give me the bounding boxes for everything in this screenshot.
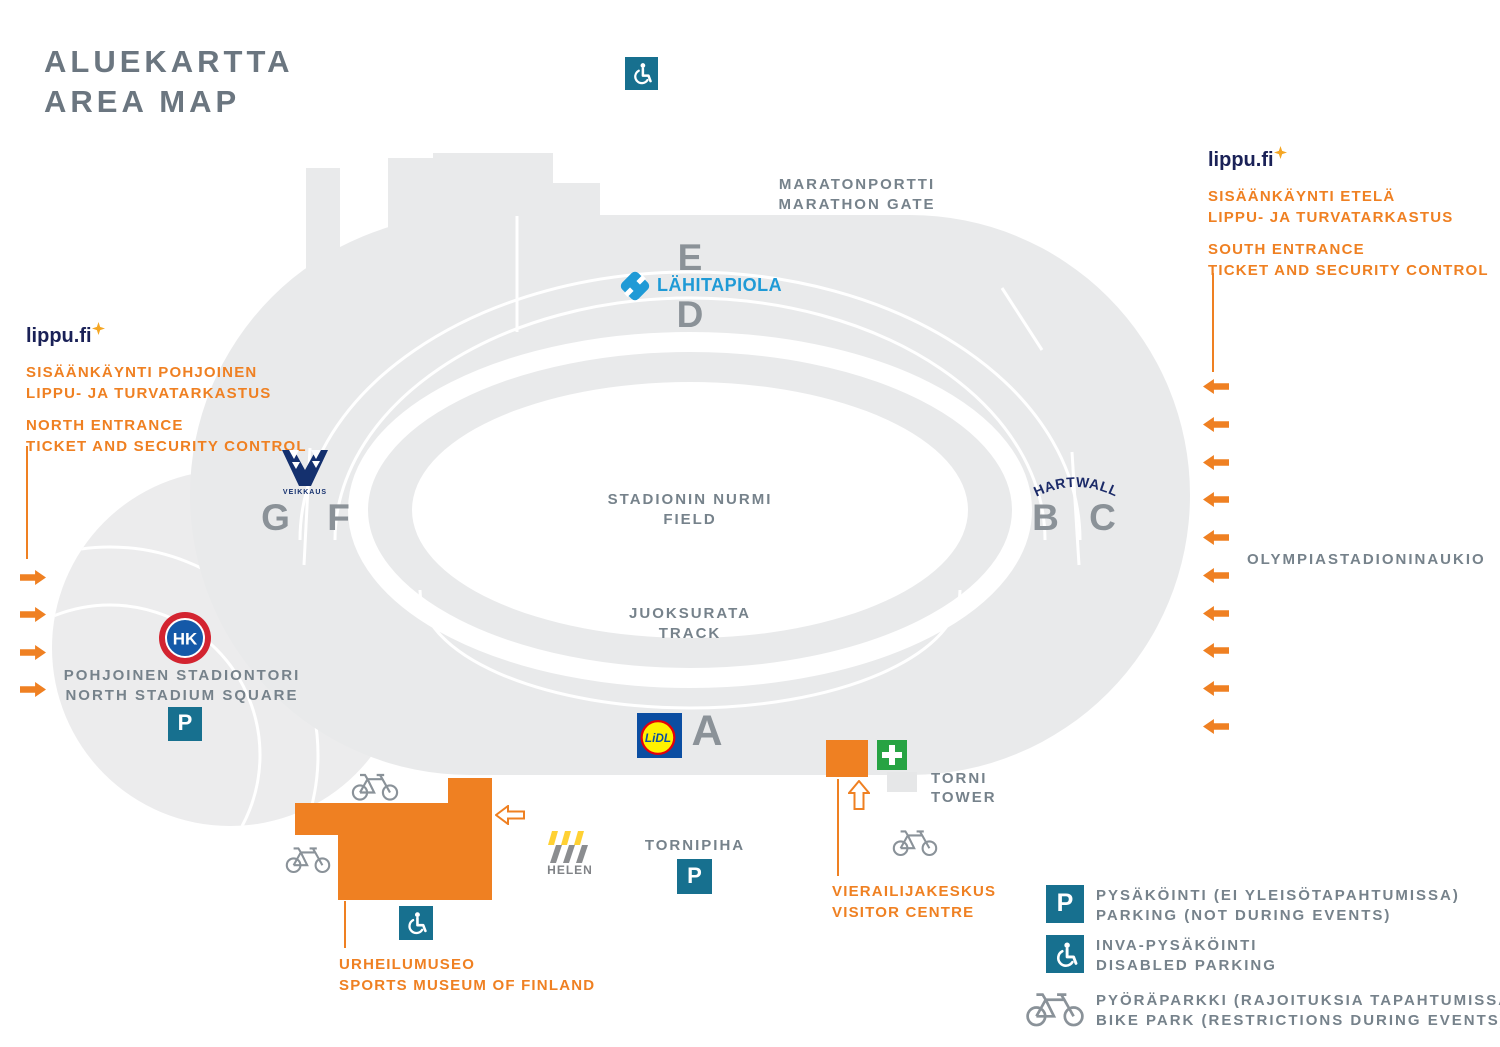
legend-parking-icon: P — [1046, 885, 1084, 923]
north-entrance-en: NORTH ENTRANCE TICKET AND SECURITY CONTR… — [26, 415, 316, 457]
north-entrance-en-line1: NORTH ENTRANCE — [26, 415, 316, 436]
legend-bike-park-text: PYÖRÄPARKKI (RAJOITUKSIA TAPAHTUMISSA) B… — [1096, 991, 1500, 1031]
legend-bike-park-fi: PYÖRÄPARKKI (RAJOITUKSIA TAPAHTUMISSA) — [1096, 991, 1500, 1011]
sports-museum-label: URHEILUMUSEO SPORTS MUSEUM OF FINLAND — [339, 954, 595, 996]
parking-icon-north-square: P — [168, 707, 202, 741]
svg-text:HARTWALL: HARTWALL — [1031, 474, 1121, 500]
lippufi-star-icon — [92, 322, 105, 335]
north-entrance-info: lippu.fi SISÄÄNKÄYNTI POHJOINEN LIPPU- J… — [26, 326, 316, 457]
south-entrance-leader-line — [1212, 273, 1214, 372]
bike-park-icon — [284, 842, 332, 874]
lippufi-wordmark: lippu.fi — [1208, 150, 1274, 170]
parking-symbol: P — [178, 712, 193, 734]
lippufi-star-icon — [1274, 146, 1287, 159]
north-entrance-en-line2: TICKET AND SECURITY CONTROL — [26, 436, 316, 457]
legend-disabled-parking-en: DISABLED PARKING — [1096, 956, 1277, 976]
legend-parking-text: PYSÄKÖINTI (EI YLEISÖTAPAHTUMISSA) PARKI… — [1096, 886, 1460, 926]
track-label: JUOKSURATA TRACK — [565, 604, 815, 644]
section-e-label: E — [660, 239, 720, 276]
section-d-label: D — [660, 296, 720, 333]
hartwall-wordmark: HARTWALL — [1030, 470, 1122, 502]
page-title-fi: ALUEKARTTA — [44, 42, 294, 82]
legend-disabled-parking-fi: INVA-PYSÄKÖINTI — [1096, 936, 1277, 956]
legend-bike-park-icon — [1024, 986, 1086, 1028]
bike-park-icon — [891, 824, 939, 858]
lippufi-logo-north: lippu.fi — [26, 326, 316, 346]
tornipiha-label: TORNIPIHA — [620, 836, 770, 856]
marathon-gate-en: MARATHON GATE — [742, 195, 972, 215]
north-entrance-fi: SISÄÄNKÄYNTI POHJOINEN LIPPU- JA TURVATA… — [26, 362, 316, 404]
north-entrance-leader-line — [26, 446, 28, 559]
lidl-logo: LiDL — [637, 713, 682, 758]
tower-en: TOWER — [931, 788, 997, 807]
hartwall-text: HARTWALL — [1031, 474, 1121, 500]
lidl-text: LiDL — [645, 732, 671, 745]
visitor-centre-en: VISITOR CENTRE — [832, 902, 996, 923]
parking-symbol: P — [1057, 891, 1074, 916]
section-f-label: F — [316, 499, 361, 536]
hk-logo: HK — [158, 611, 212, 665]
visitor-centre-label: VIERAILIJAKESKUS VISITOR CENTRE — [832, 881, 996, 923]
visitor-entrance-arrow-up — [848, 780, 870, 810]
field-fi: STADIONIN NURMI — [565, 490, 815, 510]
south-entrance-en-line2: TICKET AND SECURITY CONTROL — [1208, 260, 1498, 281]
first-aid-icon — [877, 740, 907, 770]
parking-symbol: P — [687, 865, 702, 887]
tower-footprint — [887, 772, 917, 792]
visitor-centre-building — [826, 740, 868, 777]
field-en: FIELD — [565, 510, 815, 530]
page-title: ALUEKARTTA AREA MAP — [44, 42, 294, 122]
track-fi: JUOKSURATA — [565, 604, 815, 624]
bike-park-icon — [350, 768, 400, 802]
wheelchair-icon — [403, 910, 429, 936]
tower-fi: TORNI — [931, 769, 997, 788]
south-entrance-fi: SISÄÄNKÄYNTI ETELÄ LIPPU- JA TURVATARKAS… — [1208, 186, 1498, 228]
area-map: ALUEKARTTA AREA MAP MARATONPORTTI MARATH… — [0, 0, 1500, 1047]
north-entrance-fi-line1: SISÄÄNKÄYNTI POHJOINEN — [26, 362, 316, 383]
south-entrance-fi-line2: LIPPU- JA TURVATARKASTUS — [1208, 207, 1498, 228]
lippufi-logo-south: lippu.fi — [1208, 150, 1498, 170]
wheelchair-icon — [629, 61, 654, 86]
track-en: TRACK — [565, 624, 815, 644]
legend-disabled-parking-text: INVA-PYSÄKÖINTI DISABLED PARKING — [1096, 936, 1277, 976]
south-entrance-en-line1: SOUTH ENTRANCE — [1208, 239, 1498, 260]
legend-disabled-parking-icon — [1046, 935, 1084, 973]
south-entrance-en: SOUTH ENTRANCE TICKET AND SECURITY CONTR… — [1208, 239, 1498, 281]
section-b-label: B — [1023, 499, 1068, 536]
tower-label: TORNI TOWER — [931, 769, 997, 807]
visitor-centre-fi: VIERAILIJAKESKUS — [832, 881, 996, 902]
south-entrance-fi-line1: SISÄÄNKÄYNTI ETELÄ — [1208, 186, 1498, 207]
museum-leader-line — [344, 901, 346, 948]
veikkaus-wordmark: VEIKKAUS — [272, 489, 338, 496]
marathon-gate-fi: MARATONPORTTI — [742, 175, 972, 195]
lahitapiola-wordmark: LÄHITAPIOLA — [657, 275, 782, 296]
legend-parking-en: PARKING (NOT DURING EVENTS) — [1096, 906, 1460, 926]
accessible-entrance-icon — [625, 57, 658, 90]
sports-museum-fi: URHEILUMUSEO — [339, 954, 595, 975]
lahitapiola-icon — [618, 269, 652, 303]
museum-entrance-arrow-left — [495, 805, 525, 825]
legend-parking-fi: PYSÄKÖINTI (EI YLEISÖTAPAHTUMISSA) — [1096, 886, 1460, 906]
north-square-label: POHJOINEN STADIONTORI NORTH STADIUM SQUA… — [57, 666, 307, 706]
north-entrance-fi-line2: LIPPU- JA TURVATARKASTUS — [26, 383, 316, 404]
wheelchair-icon — [1051, 940, 1080, 969]
veikkaus-icon — [280, 448, 330, 488]
legend-bike-park-en: BIKE PARK (RESTRICTIONS DURING EVENTS) — [1096, 1011, 1500, 1031]
north-square-en: NORTH STADIUM SQUARE — [57, 686, 307, 706]
olympiastadioninaukio-label: OLYMPIASTADIONINAUKIO — [1247, 550, 1486, 570]
sports-museum-en: SPORTS MUSEUM OF FINLAND — [339, 975, 595, 996]
hk-text: HK — [173, 630, 198, 649]
parking-icon-tornipiha: P — [677, 859, 712, 894]
helen-wordmark: HELEN — [538, 863, 602, 877]
field-label: STADIONIN NURMI FIELD — [565, 490, 815, 530]
disabled-access-icon-museum — [399, 906, 433, 940]
helen-logo — [547, 831, 593, 865]
south-entrance-info: lippu.fi SISÄÄNKÄYNTI ETELÄ LIPPU- JA TU… — [1208, 150, 1498, 281]
lippufi-wordmark: lippu.fi — [26, 326, 92, 346]
north-square-fi: POHJOINEN STADIONTORI — [57, 666, 307, 686]
section-c-label: C — [1080, 499, 1125, 536]
marathon-gate-label: MARATONPORTTI MARATHON GATE — [742, 175, 972, 215]
section-g-label: G — [253, 499, 298, 536]
page-title-en: AREA MAP — [44, 82, 294, 122]
section-a-label: A — [682, 710, 732, 753]
visitor-centre-leader-line — [837, 779, 839, 876]
